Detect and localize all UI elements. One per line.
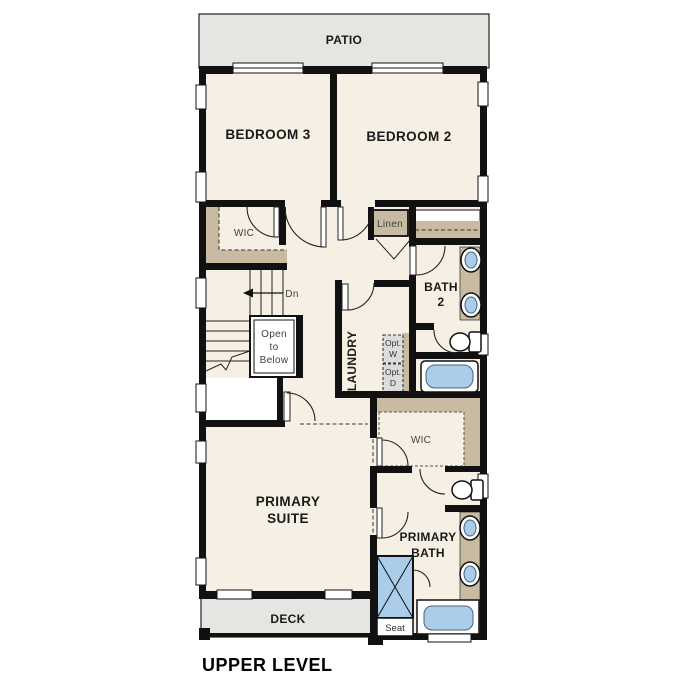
stairwell-void bbox=[206, 378, 277, 421]
primary-wic-label: WIC bbox=[411, 435, 431, 446]
window bbox=[217, 590, 252, 599]
window bbox=[196, 558, 206, 585]
linen-label: Linen bbox=[377, 219, 403, 230]
primary-wic-closet: WIC bbox=[377, 398, 480, 468]
window bbox=[196, 172, 206, 202]
sink-icon bbox=[460, 562, 480, 586]
primary-suite-door bbox=[284, 392, 290, 421]
opt-dryer-label-line2: D bbox=[390, 378, 396, 388]
opt-washer-label-line2: W bbox=[389, 349, 397, 359]
deck-area: DECK bbox=[199, 598, 372, 640]
stairs-dn-label: Dn bbox=[285, 289, 298, 300]
open-to-below-line1: Open bbox=[261, 329, 287, 340]
primary-wic-door bbox=[377, 438, 382, 466]
window bbox=[478, 82, 488, 106]
floor-plan: PATIO DECK WIC Linen Opt. W Opt. D bbox=[0, 0, 687, 687]
wic-top-door bbox=[274, 207, 279, 237]
window bbox=[196, 384, 206, 412]
bathtub-icon bbox=[421, 361, 478, 392]
toilet-icon bbox=[452, 480, 483, 500]
open-to-below-box: Open to Below bbox=[250, 316, 298, 377]
bath2-label-line1: BATH bbox=[424, 280, 458, 294]
bath2-label-line2: 2 bbox=[438, 295, 445, 309]
deck-label: DECK bbox=[270, 612, 305, 626]
floor-plan-page: PATIO DECK WIC Linen Opt. W Opt. D bbox=[0, 0, 687, 687]
patio-area: PATIO bbox=[199, 14, 489, 68]
bath2-door bbox=[410, 246, 416, 275]
window bbox=[478, 176, 488, 202]
toilet-icon bbox=[450, 332, 481, 352]
laundry-optional-appliances: Opt. W Opt. D bbox=[383, 333, 409, 392]
primary-suite-label-line1: PRIMARY bbox=[256, 494, 321, 509]
open-to-below-line3: Below bbox=[260, 355, 289, 366]
laundry-door bbox=[342, 284, 348, 310]
seat-label: Seat bbox=[385, 623, 405, 634]
open-to-below-line2: to bbox=[270, 342, 279, 353]
wic-top-label: WIC bbox=[234, 228, 254, 239]
patio-label: PATIO bbox=[326, 33, 362, 47]
bedroom3-door bbox=[321, 207, 326, 247]
primary-bath-label-line1: PRIMARY bbox=[400, 530, 457, 544]
sink-icon bbox=[461, 248, 481, 272]
primary-bath-label-line2: BATH bbox=[411, 546, 445, 560]
bedroom2-label: BEDROOM 2 bbox=[366, 129, 451, 144]
page-title: UPPER LEVEL bbox=[202, 655, 333, 675]
bedroom3-label: BEDROOM 3 bbox=[225, 127, 310, 142]
sink-icon bbox=[461, 293, 481, 317]
opt-washer-label-line1: Opt. bbox=[385, 338, 401, 348]
laundry-label: LAUNDRY bbox=[345, 331, 359, 391]
window bbox=[325, 590, 352, 599]
sink-icon bbox=[460, 516, 480, 540]
hall-closet bbox=[412, 210, 480, 238]
window bbox=[196, 85, 206, 109]
primary-bath-door bbox=[377, 508, 382, 538]
primary-suite-label-line2: SUITE bbox=[267, 511, 309, 526]
bedroom2-door bbox=[338, 207, 343, 240]
window bbox=[196, 441, 206, 463]
opt-dryer-label-line1: Opt. bbox=[385, 367, 401, 377]
window bbox=[196, 278, 206, 308]
